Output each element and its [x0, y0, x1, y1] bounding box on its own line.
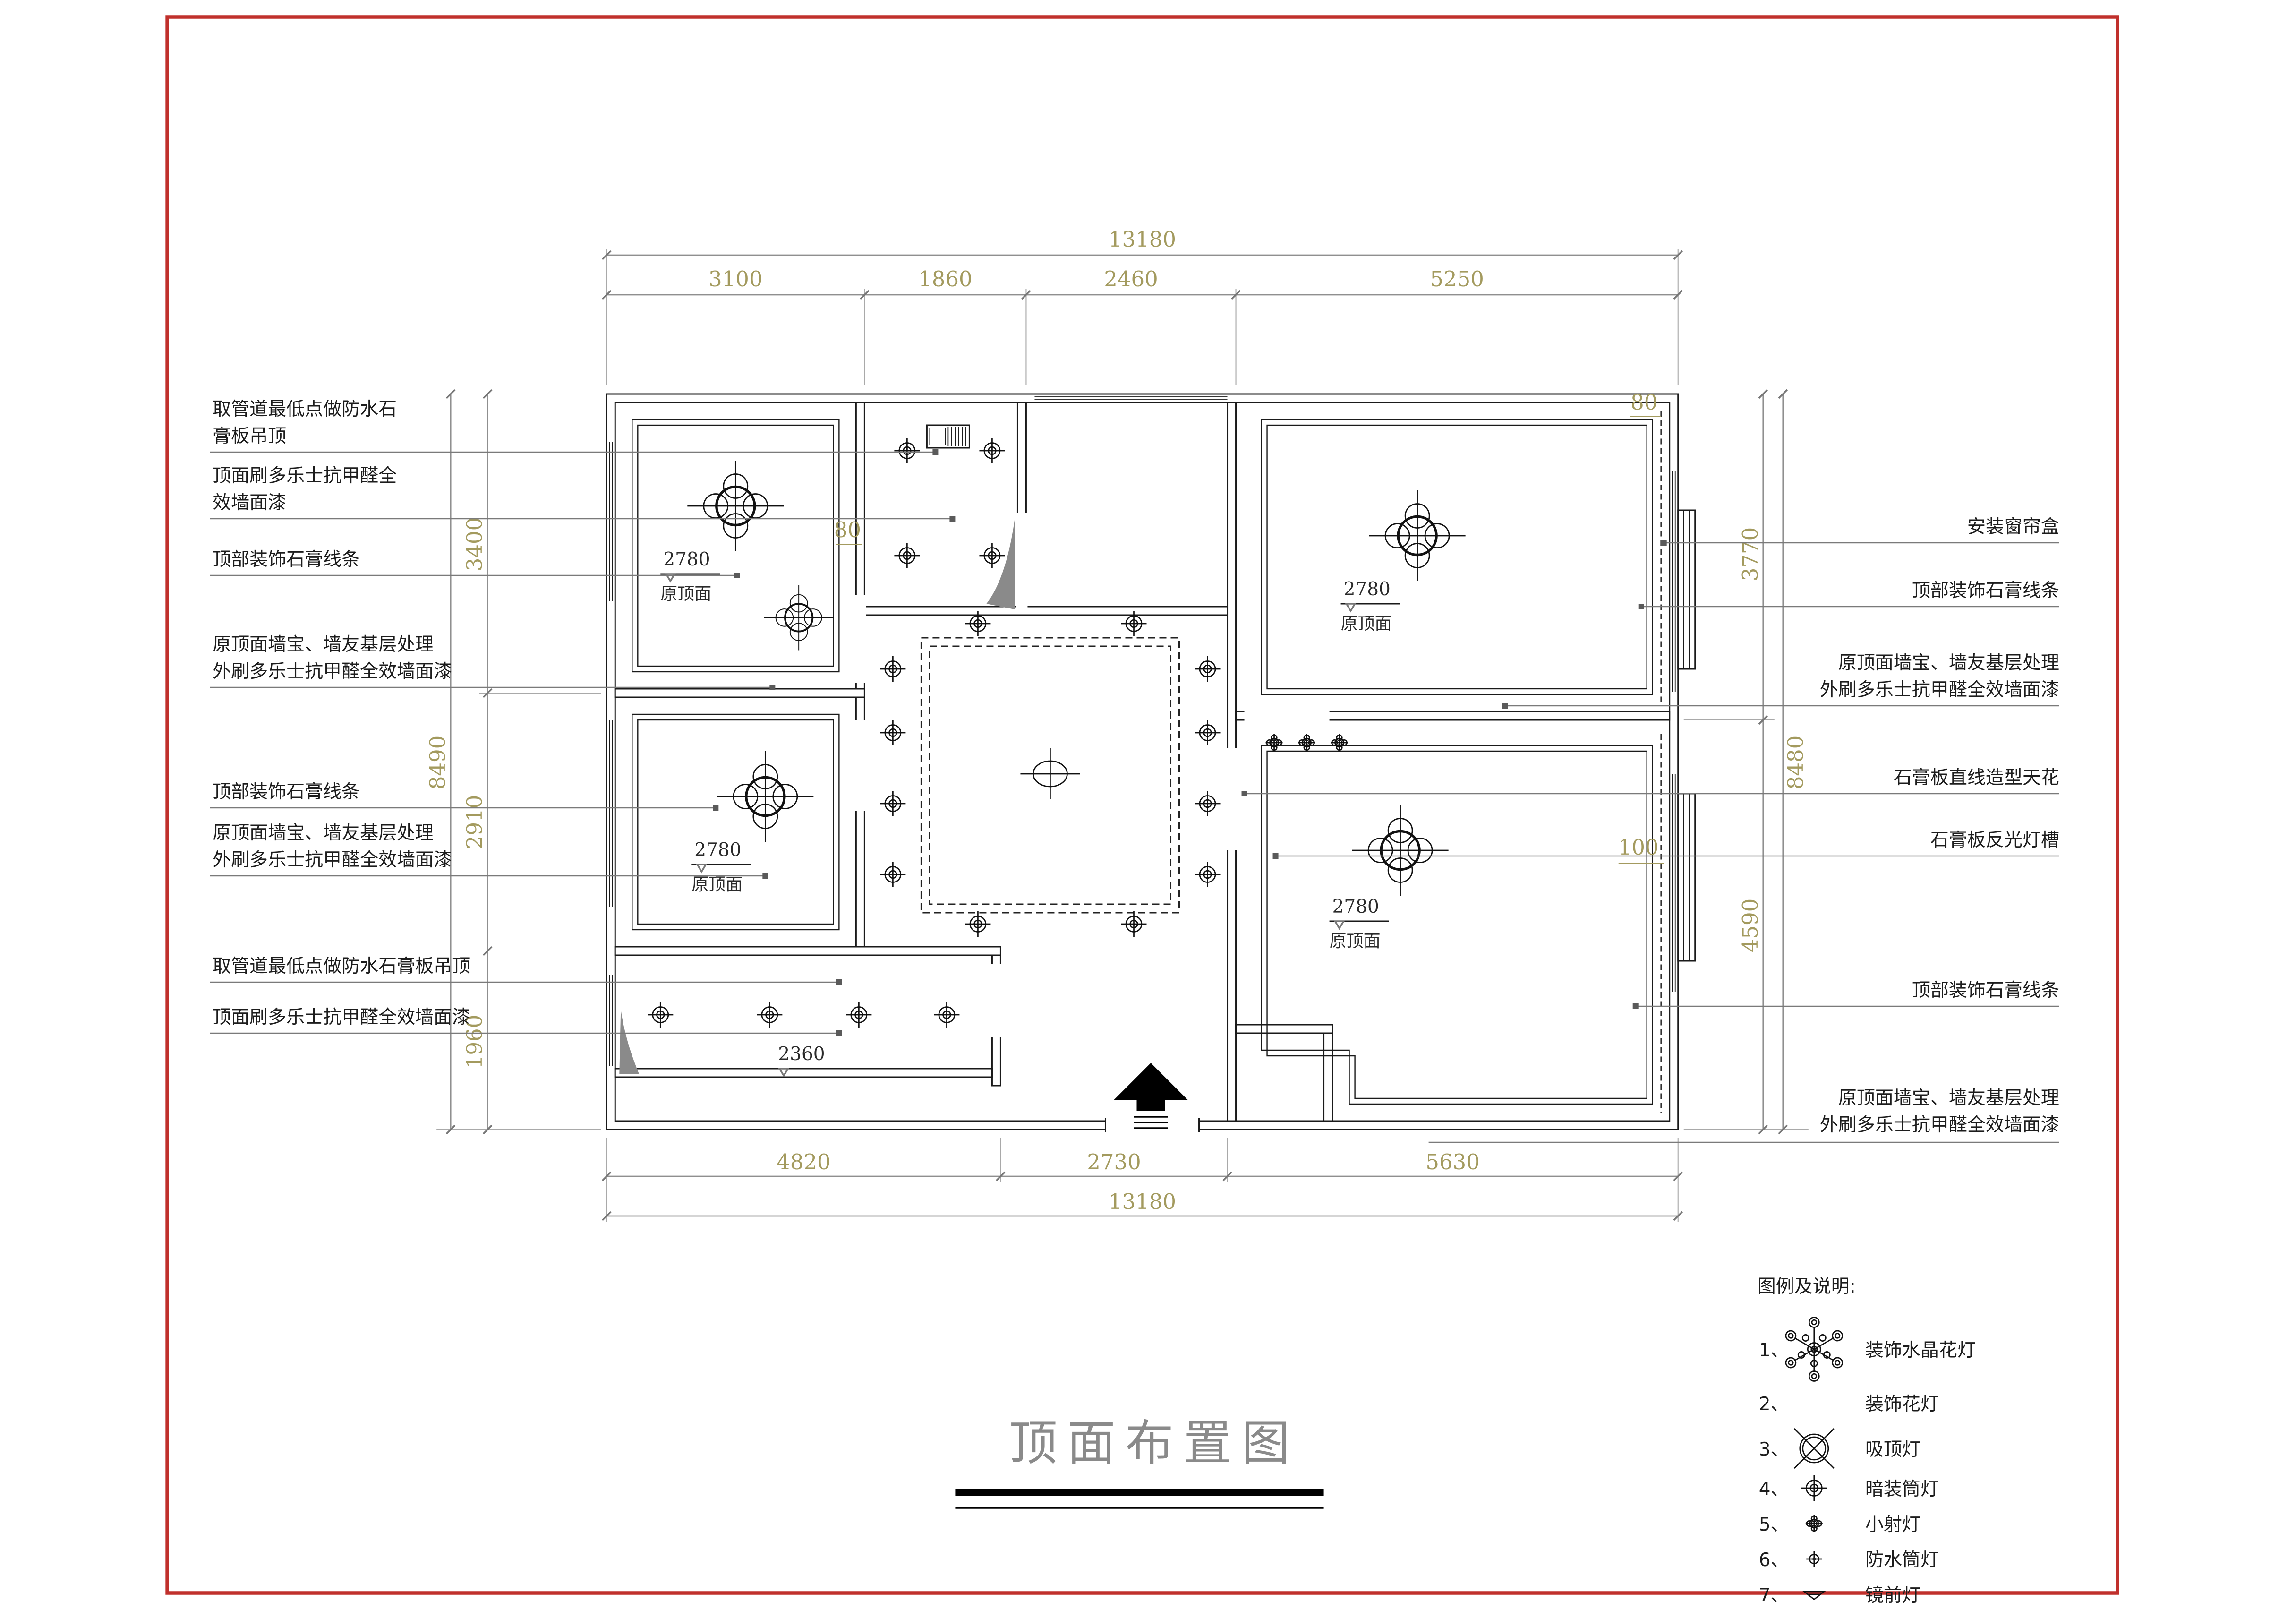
ceiling-ref: 原顶面	[1330, 932, 1381, 951]
svg-text:原顶面墙宝、墙友基层处理: 原顶面墙宝、墙友基层处理	[1838, 652, 2059, 674]
legend-no: 4、	[1759, 1479, 1789, 1500]
svg-text:顶面刷多乐士抗甲醛全效墙面漆: 顶面刷多乐士抗甲醛全效墙面漆	[213, 1007, 470, 1028]
svg-text:石膏板反光灯槽: 石膏板反光灯槽	[1930, 830, 2059, 851]
dim-right-seg: 3770	[1738, 527, 1763, 582]
svg-text:原顶面墙宝、墙友基层处理: 原顶面墙宝、墙友基层处理	[213, 822, 434, 844]
legend-no: 5、	[1759, 1514, 1789, 1535]
svg-text:外刷多乐士抗甲醛全效墙面漆: 外刷多乐士抗甲醛全效墙面漆	[1820, 1114, 2059, 1136]
dim-top-seg: 3100	[708, 266, 763, 291]
recessed-downlight-icon	[1801, 1475, 1827, 1501]
legend-no: 3、	[1759, 1439, 1789, 1460]
dim-top-seg: 5250	[1430, 266, 1484, 291]
svg-text:效墙面漆: 效墙面漆	[213, 492, 286, 514]
svg-text:外刷多乐士抗甲醛全效墙面漆: 外刷多乐士抗甲醛全效墙面漆	[213, 661, 452, 682]
ceiling-height: 2780	[1332, 896, 1379, 917]
dim-left-seg: 2910	[462, 795, 487, 849]
legend-label: 镜前灯	[1865, 1585, 1920, 1606]
ceiling-plan-svg: 2780 原顶面 2780 原顶面 2780 原顶面 2780 原顶面 2360…	[0, 0, 2296, 1610]
drawing-title: 顶面布置图	[955, 1415, 1323, 1508]
svg-text:顶面刷多乐士抗甲醛全: 顶面刷多乐士抗甲醛全	[213, 465, 397, 487]
small-spotlight-icon	[1806, 1515, 1823, 1532]
ceiling-height: 2780	[1344, 579, 1391, 600]
ceiling-ref: 原顶面	[1341, 614, 1392, 634]
legend-no: 6、	[1759, 1550, 1789, 1571]
svg-text:取管道最低点做防水石: 取管道最低点做防水石	[213, 399, 397, 420]
svg-text:顶部装饰石膏线条: 顶部装饰石膏线条	[213, 781, 360, 803]
dim-bottom-seg: 2730	[1087, 1149, 1141, 1174]
drawing-sheet: 2780 原顶面 2780 原顶面 2780 原顶面 2780 原顶面 2360…	[0, 0, 2296, 1610]
ceiling-height: 2780	[694, 839, 741, 861]
svg-text:膏板吊顶: 膏板吊顶	[213, 426, 286, 447]
crystal-chandelier-icon	[1784, 1318, 1844, 1381]
callout: 顶部装饰石膏线条	[1633, 980, 2059, 1009]
dim-bottom-overall: 13180	[1109, 1189, 1176, 1214]
ceiling-ref: 原顶面	[691, 875, 743, 894]
callout: 安装窗帘盒	[1661, 516, 2059, 546]
dim-right-seg: 4590	[1738, 899, 1763, 953]
legend-label: 装饰花灯	[1865, 1394, 1939, 1415]
legend-label: 吸顶灯	[1865, 1439, 1920, 1460]
dim-bottom-seg: 5630	[1425, 1149, 1480, 1174]
svg-text:石膏板直线造型天花: 石膏板直线造型天花	[1894, 767, 2059, 788]
ceiling-ref: 原顶面	[660, 584, 711, 604]
legend-no: 2、	[1759, 1394, 1789, 1415]
svg-text:原顶面墙宝、墙友基层处理: 原顶面墙宝、墙友基层处理	[213, 634, 434, 655]
dim-left-overall: 8490	[425, 736, 450, 790]
ceiling-lamp-icon	[1794, 1429, 1834, 1468]
legend-heading: 图例及说明:	[1758, 1276, 1856, 1297]
dim-right-overall: 8480	[1783, 736, 1808, 790]
ceiling-height: 2360	[778, 1044, 825, 1065]
svg-text:原顶面墙宝、墙友基层处理: 原顶面墙宝、墙友基层处理	[1838, 1088, 2059, 1109]
legend-no: 1、	[1759, 1340, 1789, 1361]
svg-text:安装窗帘盒: 安装窗帘盒	[1967, 516, 2059, 538]
waterproof-downlight-icon	[1806, 1551, 1822, 1567]
svg-text:顶部装饰石膏线条: 顶部装饰石膏线条	[1912, 980, 2059, 1001]
svg-text:外刷多乐士抗甲醛全效墙面漆: 外刷多乐士抗甲醛全效墙面漆	[1820, 679, 2059, 701]
bay-window-bottom-right	[1678, 794, 1695, 961]
dim-top-seg: 1860	[918, 266, 973, 291]
dim-bottom-seg: 4820	[777, 1149, 831, 1174]
callout: 顶部装饰石膏线条	[1639, 580, 2059, 609]
svg-text:顶部装饰石膏线条: 顶部装饰石膏线条	[1912, 580, 2059, 601]
dim-top-seg: 2460	[1104, 266, 1158, 291]
offset-dim: 80	[1630, 390, 1657, 415]
svg-text:取管道最低点做防水石膏板吊顶: 取管道最低点做防水石膏板吊顶	[213, 956, 470, 977]
svg-text:外刷多乐士抗甲醛全效墙面漆: 外刷多乐士抗甲醛全效墙面漆	[213, 849, 452, 871]
legend-label: 防水筒灯	[1865, 1550, 1939, 1571]
page-title: 顶面布置图	[1009, 1415, 1299, 1472]
ceiling-height: 2780	[663, 549, 710, 570]
offset-dim: 80	[834, 517, 861, 542]
bay-window-top-right	[1678, 510, 1695, 669]
legend-label: 装饰水晶花灯	[1865, 1340, 1976, 1361]
legend-label: 暗装筒灯	[1865, 1479, 1939, 1500]
svg-text:顶部装饰石膏线条: 顶部装饰石膏线条	[213, 549, 360, 570]
legend-no: 7、	[1759, 1585, 1789, 1606]
dim-left-seg: 3400	[462, 517, 487, 572]
legend-label: 小射灯	[1865, 1514, 1920, 1535]
dim-top-overall: 13180	[1109, 227, 1176, 252]
